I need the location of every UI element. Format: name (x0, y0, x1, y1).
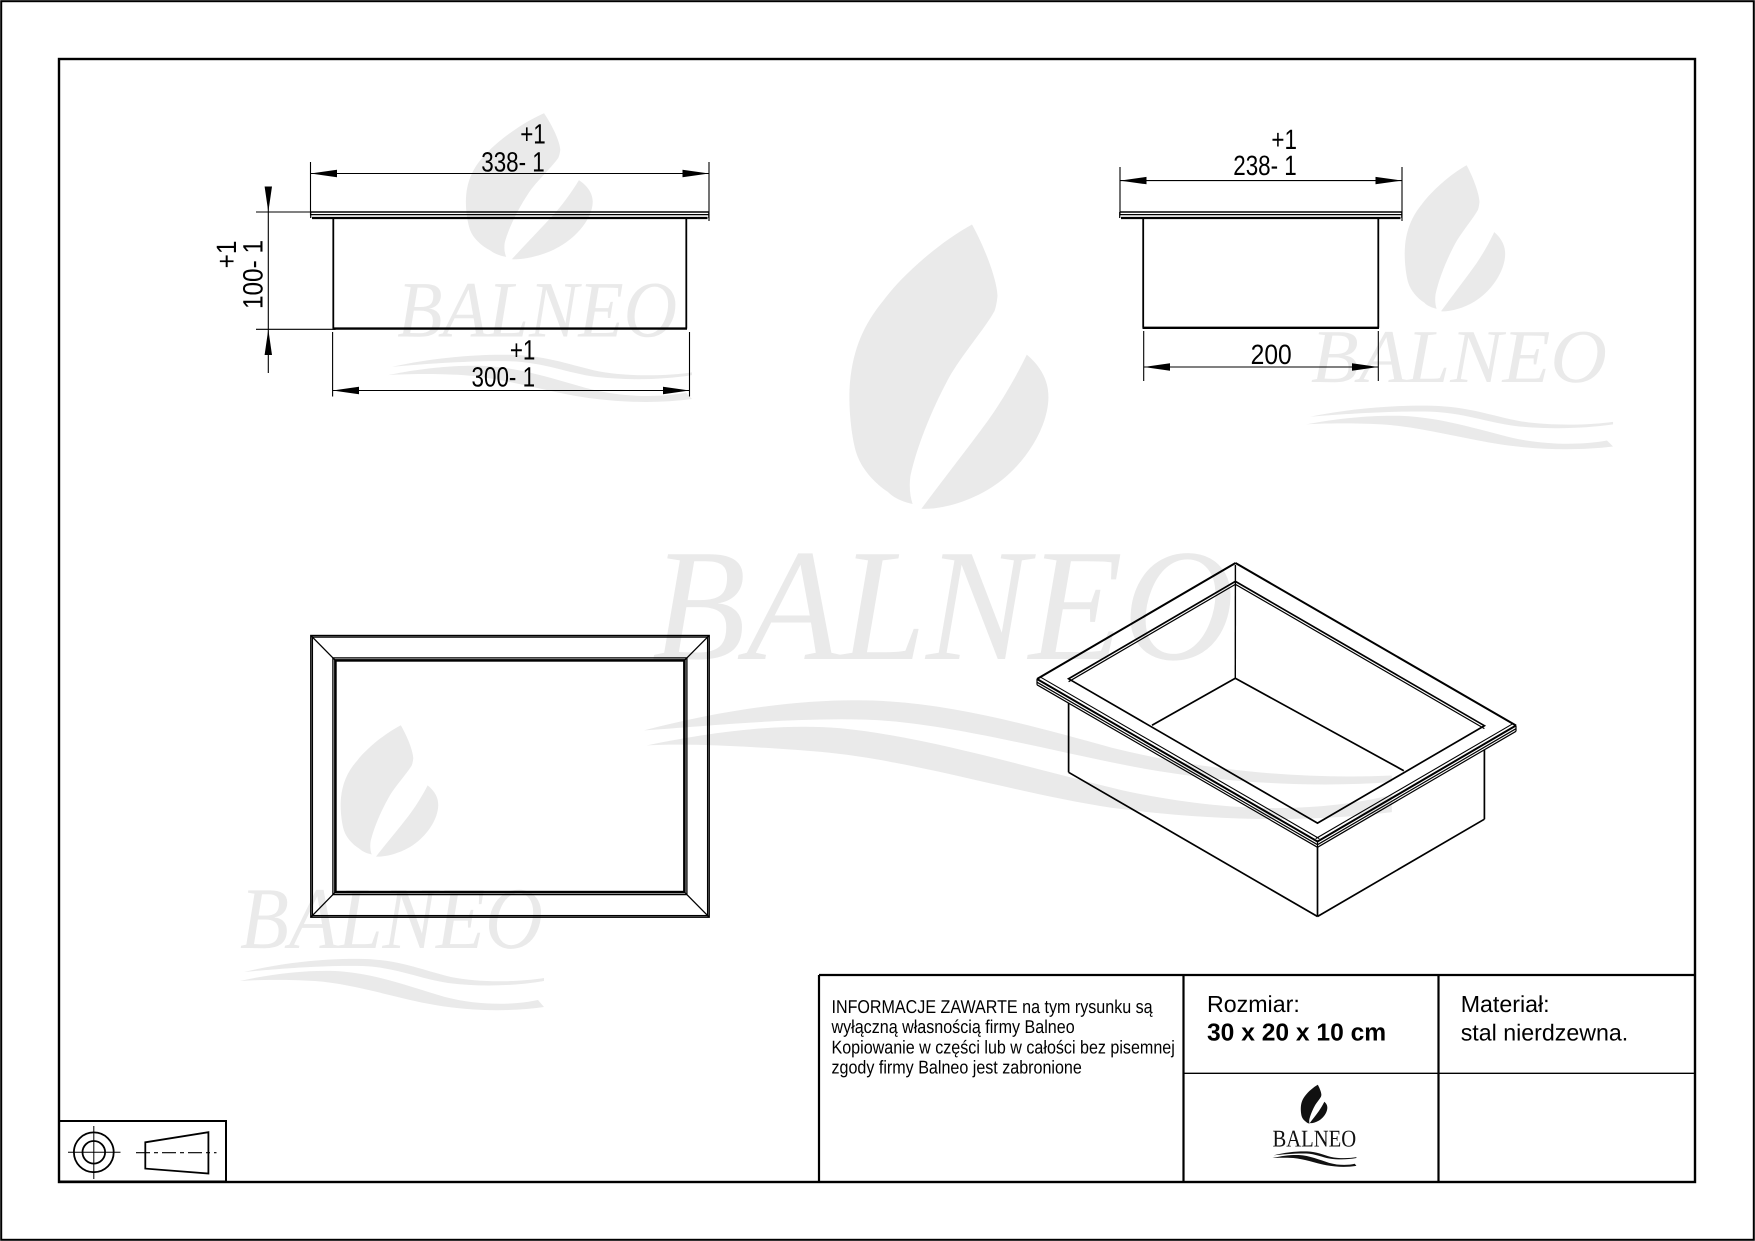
svg-text:INFORMACJE ZAWARTE na tym rysu: INFORMACJE ZAWARTE na tym rysunku są (832, 996, 1154, 1017)
svg-text:stal nierdzewna.: stal nierdzewna. (1461, 1020, 1629, 1046)
svg-text:BALNEO: BALNEO (1273, 1127, 1357, 1153)
svg-text:BALNEO: BALNEO (652, 516, 1234, 694)
svg-text:BALNEO: BALNEO (397, 267, 677, 355)
svg-text:30 x 20 x 10 cm: 30 x 20 x 10 cm (1207, 1020, 1386, 1047)
svg-text:300- 1: 300- 1 (472, 361, 536, 392)
svg-text:BALNEO: BALNEO (240, 871, 543, 968)
svg-text:100- 1: 100- 1 (238, 240, 269, 309)
svg-text:200: 200 (1251, 339, 1292, 370)
svg-text:238- 1: 238- 1 (1233, 150, 1297, 181)
svg-text:zgody firmy Balneo jest zabron: zgody firmy Balneo jest zabronione (832, 1057, 1082, 1078)
svg-text:Kopiowanie w części lub w cało: Kopiowanie w części lub w całości bez pi… (832, 1036, 1175, 1057)
svg-text:Rozmiar:: Rozmiar: (1207, 991, 1300, 1017)
svg-text:338- 1: 338- 1 (481, 147, 545, 178)
svg-text:Materiał:: Materiał: (1461, 991, 1550, 1017)
svg-text:wyłączną własnością firmy Baln: wyłączną własnością firmy Balneo (831, 1016, 1075, 1037)
svg-text:+1: +1 (520, 119, 546, 150)
